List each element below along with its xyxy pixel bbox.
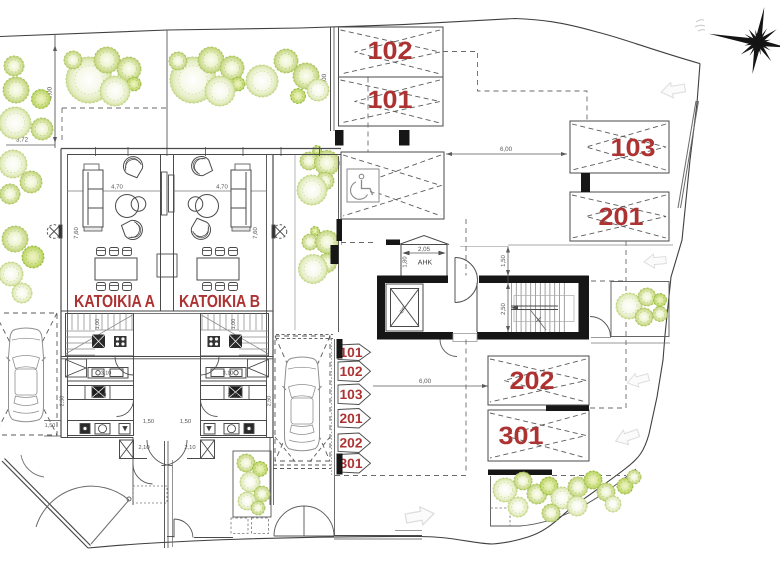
svg-text:103: 103: [611, 134, 656, 162]
svg-text:3,10: 3,10: [223, 371, 234, 377]
svg-text:103: 103: [340, 387, 363, 402]
svg-text:101: 101: [368, 86, 413, 114]
svg-text:301: 301: [340, 456, 363, 471]
svg-text:7,60: 7,60: [73, 227, 80, 239]
svg-text:102: 102: [340, 364, 363, 379]
svg-text:202: 202: [340, 436, 363, 451]
svg-text:4,70: 4,70: [111, 184, 123, 191]
svg-text:2,50: 2,50: [267, 396, 273, 407]
svg-text:AHK: AHK: [418, 260, 433, 267]
svg-text:2,05: 2,05: [418, 246, 431, 253]
svg-text:101: 101: [340, 345, 363, 360]
svg-text:2,50: 2,50: [500, 303, 507, 315]
svg-text:6,00: 6,00: [419, 378, 432, 385]
svg-text:201: 201: [599, 203, 644, 231]
svg-text:1,50: 1,50: [143, 418, 154, 425]
svg-text:KATOIKIA A: KATOIKIA A: [74, 291, 155, 311]
svg-text:1,80: 1,80: [402, 256, 409, 267]
svg-text:102: 102: [368, 37, 413, 65]
svg-text:7,60: 7,60: [252, 227, 259, 239]
svg-text:2,50: 2,50: [60, 396, 66, 407]
svg-text:3,10: 3,10: [101, 371, 112, 377]
svg-text:201: 201: [340, 411, 363, 426]
svg-text:1,50: 1,50: [180, 418, 191, 425]
svg-text:301: 301: [499, 422, 544, 450]
svg-text:1,00: 1,00: [231, 319, 237, 330]
svg-text:6,00: 6,00: [500, 146, 513, 153]
svg-text:4,70: 4,70: [216, 184, 228, 191]
svg-text:1,00: 1,00: [95, 319, 101, 330]
svg-text:202: 202: [510, 367, 555, 395]
svg-text:1,50: 1,50: [500, 255, 507, 267]
svg-text:3,10: 3,10: [228, 393, 239, 399]
svg-text:KATOIKIA B: KATOIKIA B: [179, 291, 260, 311]
svg-text:3,10: 3,10: [96, 393, 107, 399]
